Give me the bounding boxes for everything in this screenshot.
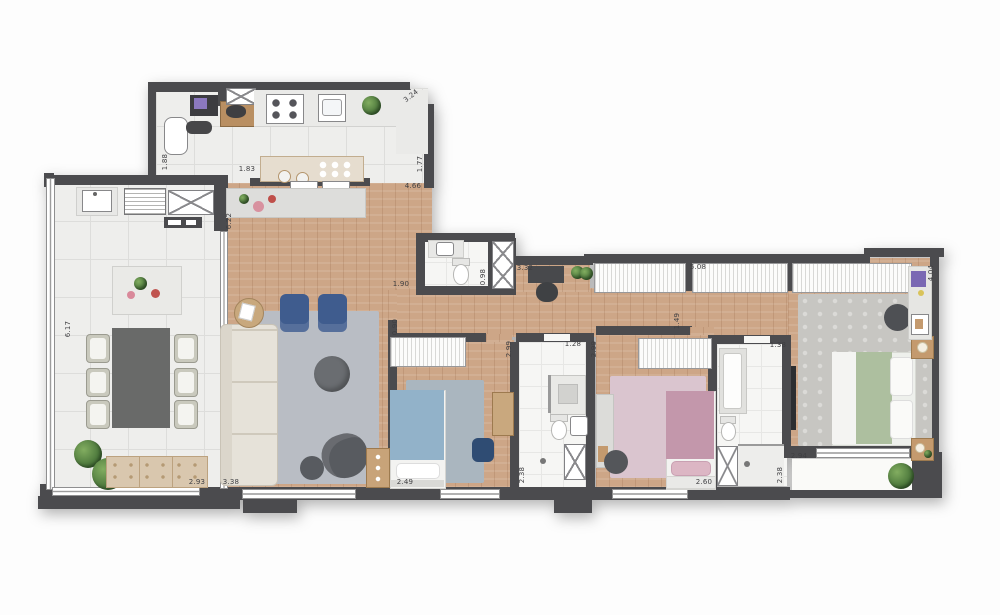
wall bbox=[48, 175, 224, 185]
blue-armchair bbox=[280, 294, 309, 332]
sofa bbox=[220, 324, 278, 486]
dimension-label: 1.28 bbox=[565, 340, 581, 348]
dimension-label: 6.17 bbox=[64, 321, 72, 337]
plant bbox=[239, 194, 249, 204]
floor-plan-canvas: 3.241.771.881.834.666.226.172.933.381.90… bbox=[0, 0, 1000, 615]
ac-vent bbox=[186, 220, 196, 225]
window bbox=[242, 489, 356, 499]
coffee-table bbox=[314, 356, 350, 392]
pillow bbox=[396, 463, 440, 479]
dimension-label: 3.32 bbox=[517, 264, 533, 272]
dimension-label: 2.99 bbox=[590, 341, 598, 357]
flower-decor bbox=[127, 291, 135, 299]
wardrobe bbox=[594, 263, 686, 293]
duct-shaft bbox=[564, 444, 586, 480]
dimension-label: 5.08 bbox=[690, 263, 706, 271]
ottoman bbox=[300, 456, 324, 480]
column bbox=[554, 489, 592, 513]
shower-glass bbox=[548, 375, 551, 413]
washer-lid bbox=[194, 98, 207, 109]
wall bbox=[148, 82, 156, 184]
window bbox=[816, 448, 910, 458]
dimension-label: 0.98 bbox=[479, 269, 487, 285]
dimension-label: 2.38 bbox=[776, 467, 784, 483]
barbecue-grill bbox=[124, 188, 166, 215]
kitchen-island bbox=[260, 156, 364, 182]
bathroom-sink bbox=[570, 416, 588, 436]
bedroom1-desk bbox=[492, 392, 514, 436]
candle bbox=[917, 342, 928, 353]
laundry-sink bbox=[226, 105, 246, 118]
dimension-label: 0.90 bbox=[391, 319, 399, 335]
window bbox=[440, 489, 500, 499]
plant bbox=[362, 96, 381, 115]
door-opening bbox=[388, 290, 397, 320]
toilet-bowl bbox=[453, 264, 469, 285]
dimension-label: 2.38 bbox=[518, 467, 526, 483]
flower-decor bbox=[151, 289, 160, 298]
flower-decor bbox=[268, 195, 276, 203]
hall-desk bbox=[528, 266, 564, 283]
wardrobe bbox=[638, 338, 712, 369]
dimension-label: 6.22 bbox=[225, 213, 233, 229]
door-opening bbox=[744, 336, 770, 343]
laundry-tub bbox=[186, 121, 212, 134]
pouf bbox=[604, 450, 628, 474]
master-vanity-basin bbox=[723, 353, 742, 409]
wardrobe bbox=[692, 263, 788, 293]
plant bbox=[888, 463, 914, 489]
vanity-stool bbox=[884, 304, 911, 331]
wall bbox=[588, 254, 870, 263]
toilet-bowl bbox=[551, 420, 567, 440]
pillow bbox=[671, 461, 711, 476]
wall bbox=[782, 335, 791, 455]
dining-chair bbox=[86, 368, 110, 397]
mattress-throw bbox=[832, 352, 858, 444]
faucet bbox=[93, 192, 97, 196]
dining-table bbox=[112, 328, 170, 428]
coffee-side-table bbox=[112, 266, 182, 315]
dining-chair bbox=[174, 334, 198, 363]
toilet-bowl bbox=[721, 422, 736, 441]
column bbox=[243, 497, 297, 513]
pouf bbox=[472, 438, 494, 462]
dimension-label: 2.60 bbox=[696, 478, 712, 486]
window bbox=[46, 178, 55, 490]
desk-item bbox=[918, 290, 924, 296]
dimension-label: 2.94 bbox=[791, 452, 807, 460]
dimension-label: 2.49 bbox=[397, 478, 413, 486]
duct-shaft bbox=[492, 241, 514, 289]
pillow bbox=[890, 400, 913, 439]
wall bbox=[416, 233, 425, 293]
mirror-frame-item bbox=[915, 319, 923, 329]
wardrobe bbox=[390, 337, 466, 367]
ironing-board bbox=[164, 117, 188, 155]
dining-chair bbox=[86, 400, 110, 429]
pillow bbox=[890, 357, 913, 396]
balcony-parapet bbox=[790, 490, 938, 498]
flower-decor bbox=[253, 201, 264, 212]
dimension-label: 1.88 bbox=[161, 154, 169, 170]
duct-shaft bbox=[226, 88, 256, 105]
shower-drain bbox=[744, 461, 750, 467]
dimension-label: 2.93 bbox=[189, 478, 205, 486]
dining-chair bbox=[174, 368, 198, 397]
wall bbox=[586, 342, 595, 488]
dimension-label: 1.83 bbox=[239, 165, 255, 173]
desk-chair bbox=[536, 282, 558, 302]
shower-drain bbox=[540, 458, 546, 464]
wall bbox=[38, 496, 240, 509]
stove-cooktop bbox=[266, 94, 304, 124]
blue-armchair bbox=[318, 294, 347, 332]
terrace-sink bbox=[82, 190, 112, 212]
dimension-label: 4.04 bbox=[927, 265, 935, 281]
hallway-floor bbox=[396, 288, 790, 337]
tv-panel bbox=[791, 366, 796, 430]
dimension-label: 1.38 bbox=[770, 341, 786, 349]
plant bbox=[580, 267, 593, 280]
lavabo-basin bbox=[436, 242, 454, 256]
dimension-label: 1.77 bbox=[416, 156, 424, 172]
plant bbox=[924, 450, 932, 458]
dining-chair bbox=[174, 400, 198, 429]
window bbox=[612, 489, 688, 499]
duct-shaft bbox=[168, 190, 214, 215]
dimension-label: 3.38 bbox=[223, 478, 239, 486]
dimension-label: 1.90 bbox=[393, 280, 409, 288]
dimension-label: 2.99 bbox=[505, 341, 513, 357]
laptop bbox=[911, 271, 926, 287]
floor-plan: 3.241.771.881.834.666.226.172.933.381.90… bbox=[0, 0, 1000, 615]
shower-seat bbox=[558, 384, 578, 404]
wardrobe bbox=[792, 263, 912, 293]
kitchen-sink-basin bbox=[322, 99, 342, 116]
dimension-label: 4.66 bbox=[405, 182, 421, 190]
blanket-green bbox=[856, 352, 892, 444]
plant bbox=[134, 277, 147, 290]
dining-chair bbox=[86, 334, 110, 363]
ac-vent bbox=[168, 220, 181, 225]
door-opening bbox=[690, 327, 714, 335]
tv-console bbox=[366, 448, 390, 488]
dimension-label: 1.49 bbox=[673, 313, 681, 329]
blanket-pink bbox=[666, 391, 714, 459]
window bbox=[52, 487, 200, 496]
blanket-blue bbox=[390, 390, 444, 460]
duct-shaft bbox=[717, 446, 738, 486]
